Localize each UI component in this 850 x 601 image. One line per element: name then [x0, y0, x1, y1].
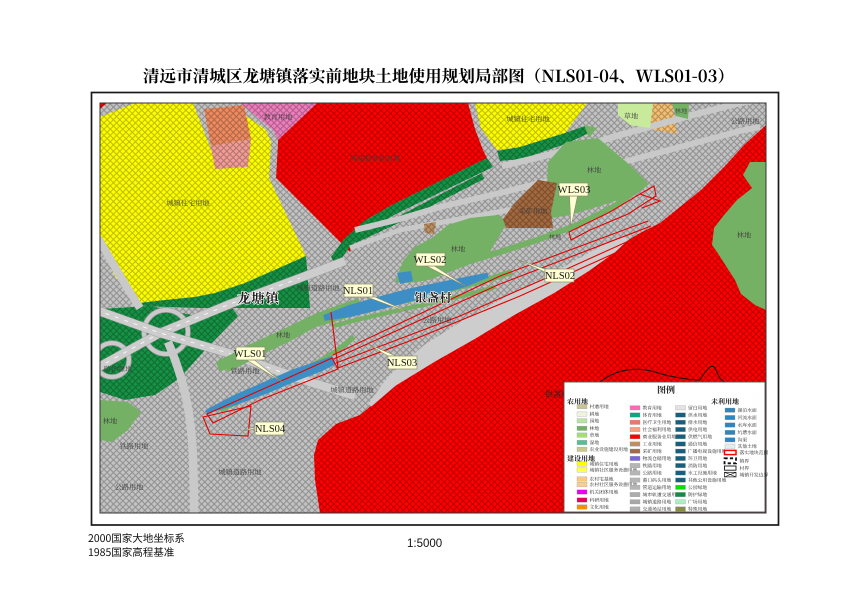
svg-text:NLS02: NLS02: [545, 271, 575, 282]
svg-text:WLS01: WLS01: [234, 349, 267, 360]
svg-text:1:5000: 1:5000: [407, 538, 442, 550]
svg-text:WLS03: WLS03: [558, 185, 591, 196]
svg-text:NLS04: NLS04: [255, 424, 286, 435]
svg-text:NLS03: NLS03: [387, 358, 417, 369]
svg-text:NLS01: NLS01: [343, 286, 373, 297]
svg-text:WLS02: WLS02: [414, 255, 447, 266]
